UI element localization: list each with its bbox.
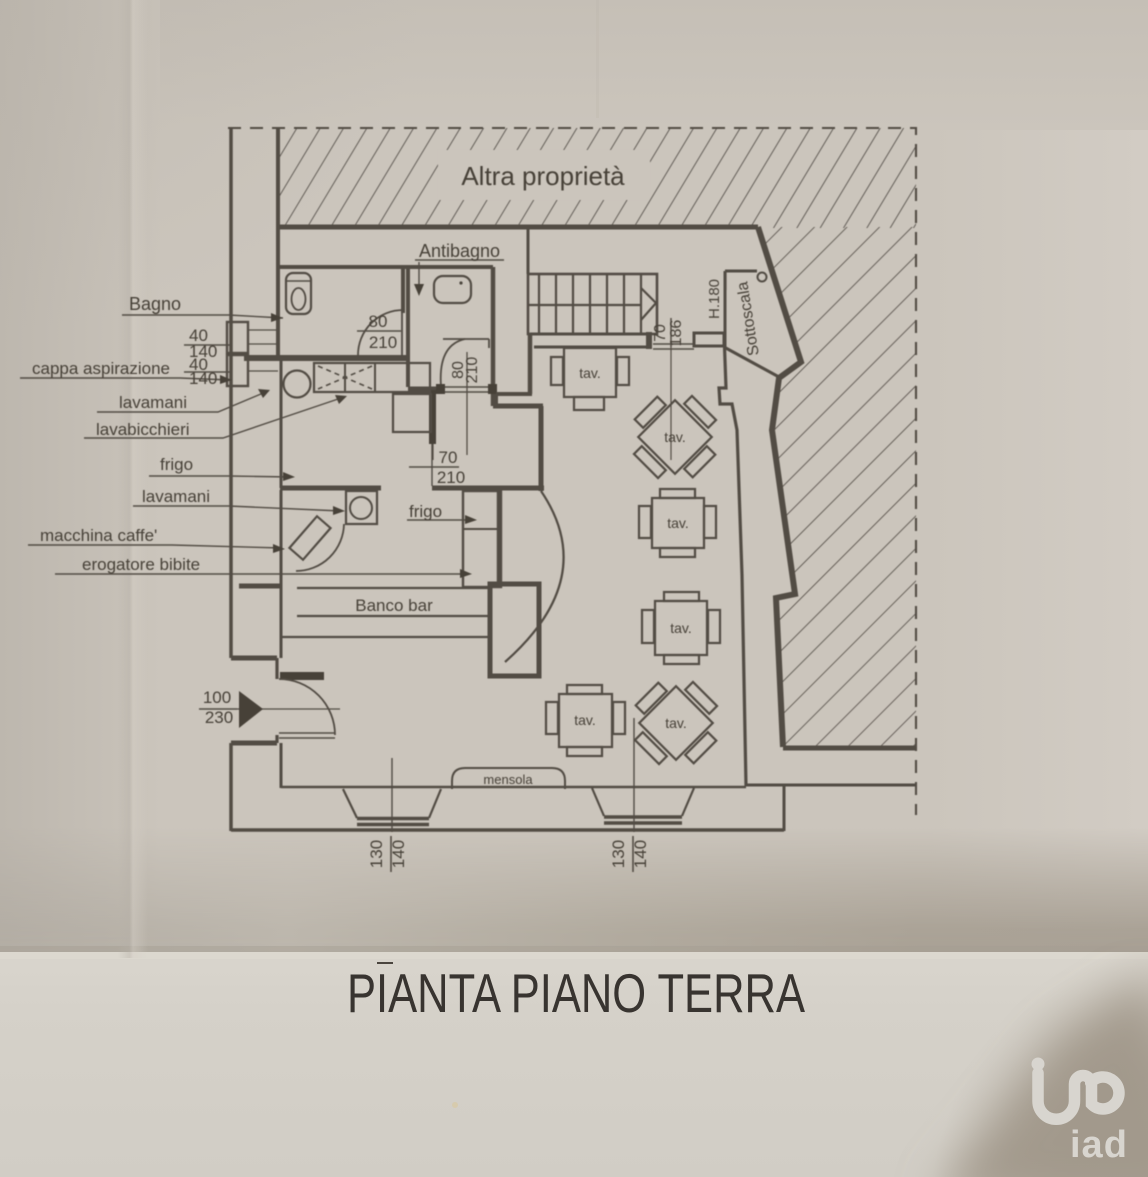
svg-text:tav.: tav. [670,620,692,636]
svg-text:70: 70 [652,324,669,342]
svg-text:70: 70 [439,448,458,467]
svg-text:mensola: mensola [483,772,533,787]
svg-text:Antibagno: Antibagno [419,241,500,261]
svg-text:Banco bar: Banco bar [355,596,433,615]
svg-text:tav.: tav. [667,515,689,531]
svg-text:erogatore bibite: erogatore bibite [82,555,200,574]
svg-text:cappa aspirazione: cappa aspirazione [32,359,170,378]
svg-text:frigo: frigo [160,455,193,474]
svg-text:lavabicchieri: lavabicchieri [96,420,190,439]
svg-text:Altra proprietà: Altra proprietà [461,161,625,191]
svg-text:tav.: tav. [664,429,686,445]
svg-text:tav.: tav. [574,712,596,728]
svg-text:130: 130 [367,840,386,868]
svg-text:130: 130 [609,840,628,868]
svg-text:210: 210 [464,357,481,384]
svg-text:Sottoscala: Sottoscala [734,280,762,357]
svg-text:tav.: tav. [665,715,687,731]
svg-text:186: 186 [668,320,685,347]
svg-text:H.180: H.180 [706,279,723,319]
svg-text:140: 140 [631,840,650,868]
svg-text:100: 100 [203,688,231,707]
svg-text:macchina caffe': macchina caffe' [40,526,157,545]
svg-text:80: 80 [369,312,388,331]
svg-text:140: 140 [389,840,408,868]
svg-text:140: 140 [189,369,217,388]
svg-text:230: 230 [205,708,233,727]
svg-text:lavamani: lavamani [119,393,187,412]
svg-text:Bagno: Bagno [129,294,181,314]
svg-text:210: 210 [437,468,465,487]
svg-text:lavamani: lavamani [142,487,210,506]
svg-text:tav.: tav. [579,365,601,381]
svg-text:frigo: frigo [409,502,442,521]
svg-text:210: 210 [369,333,397,352]
